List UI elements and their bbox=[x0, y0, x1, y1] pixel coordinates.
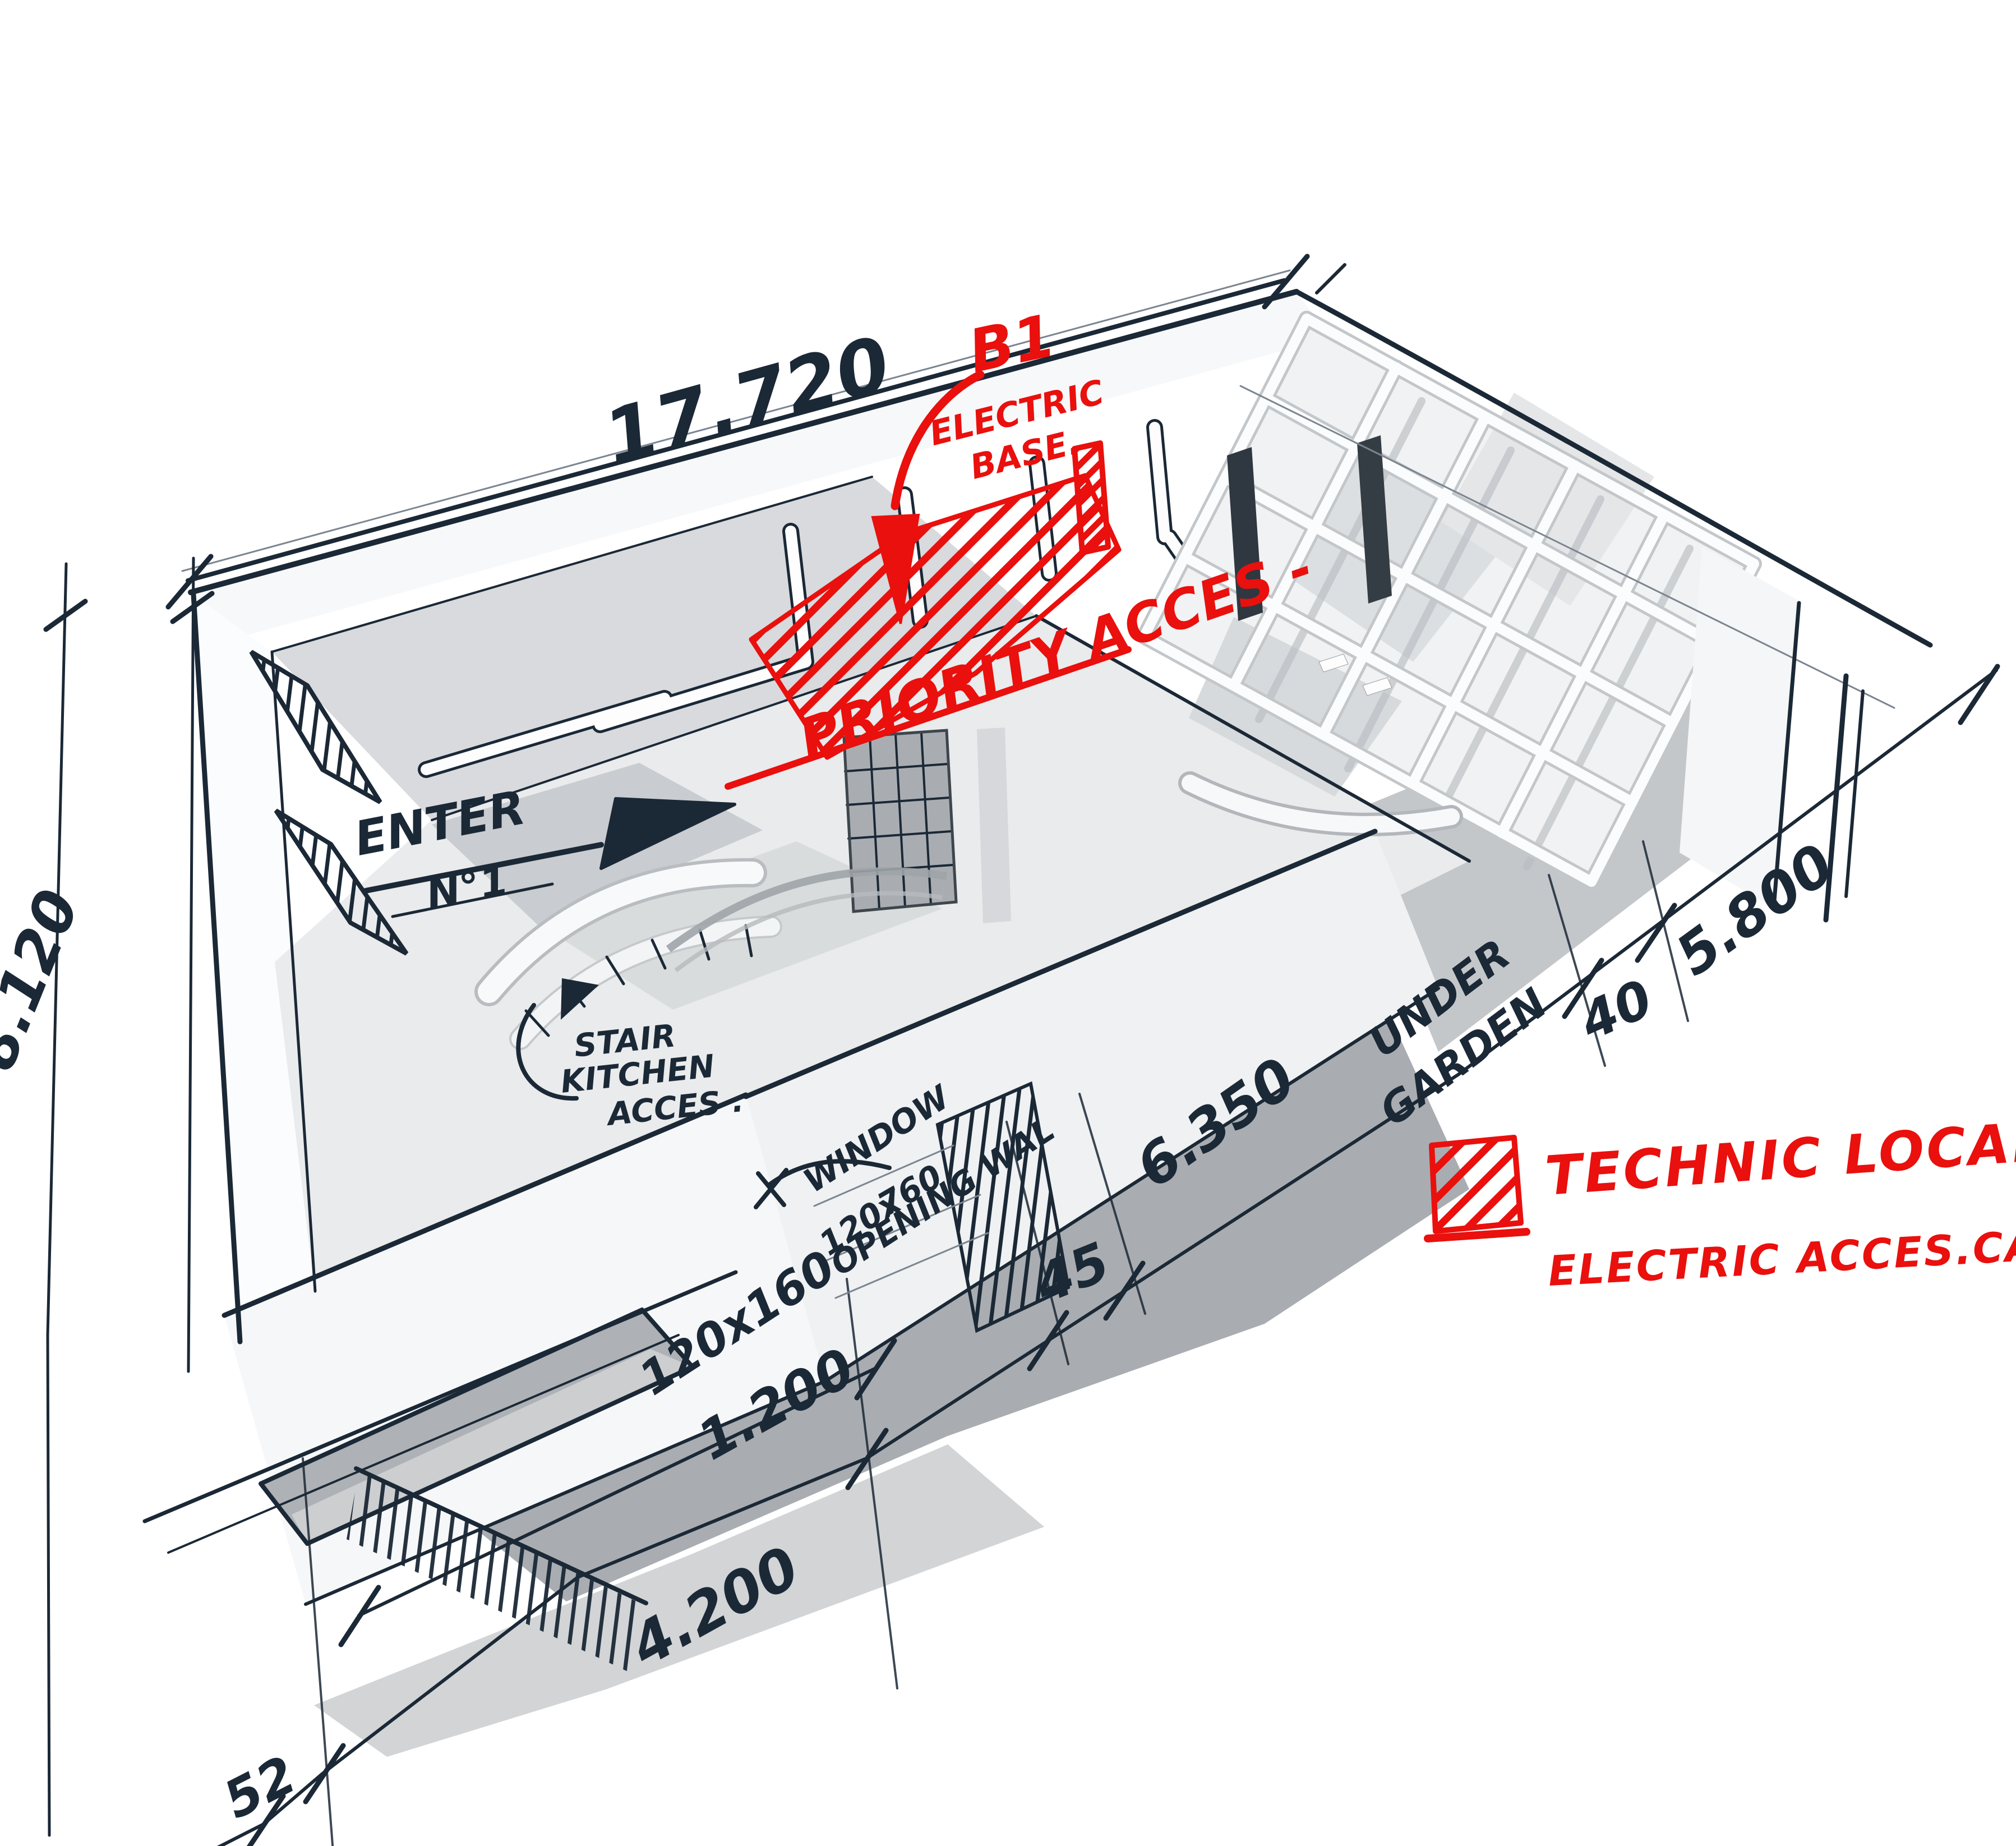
red-hatch-swatch bbox=[1432, 1138, 1521, 1231]
legend-title: TECHNIC LOCAL bbox=[1543, 1110, 2016, 1208]
dim-ticks-left bbox=[46, 593, 212, 629]
dim-hook-top bbox=[1317, 265, 1345, 293]
dim-left-label: 8.120 bbox=[0, 881, 93, 1079]
dim-line-left-1 bbox=[48, 564, 66, 1835]
dim-52-label: 52 bbox=[214, 1744, 306, 1830]
glass-block-wall bbox=[844, 730, 956, 912]
architecture-sketch-canvas: 17.720 8.120 52 4.200 1.200 120x160 45 6… bbox=[0, 0, 2016, 1846]
architecture-sketch-page: 17.720 8.120 52 4.200 1.200 120x160 45 6… bbox=[0, 0, 2016, 1846]
sketch-verticals-right-2 bbox=[1846, 691, 1863, 896]
building-model bbox=[193, 292, 1800, 1674]
dim-line-left-2 bbox=[188, 558, 193, 1371]
legend-subtitle: ELECTRIC ACCES.CABLE bbox=[1547, 1217, 2016, 1296]
